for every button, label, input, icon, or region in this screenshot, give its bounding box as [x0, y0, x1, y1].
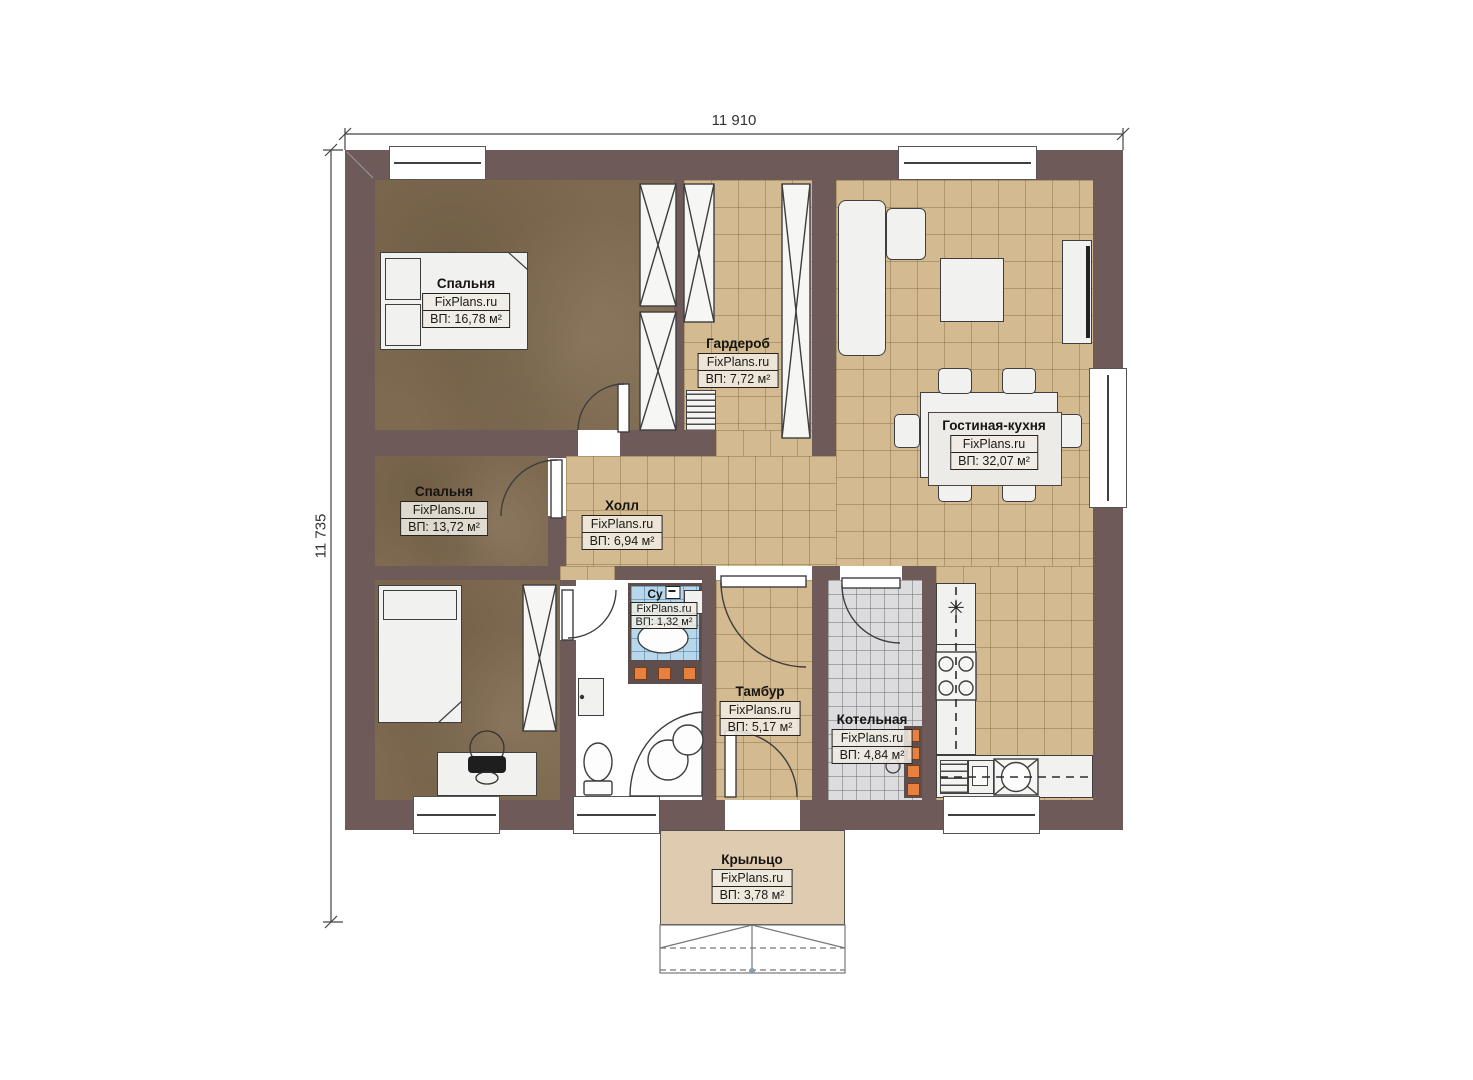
indicator-square — [907, 783, 920, 796]
watermark: FixPlans.ru — [583, 516, 662, 532]
door-symbol-icon — [666, 586, 681, 599]
window-living-right — [1089, 368, 1127, 508]
indicator-square — [907, 765, 920, 778]
wall-segment — [375, 430, 676, 456]
room-area: ВП: 3,78 м² — [713, 886, 792, 903]
room-label-boiler: Котельная FixPlans.ru ВП: 4,84 м² — [832, 712, 913, 764]
room-name: Тамбур — [720, 684, 801, 699]
window-living — [898, 146, 1037, 180]
room-label-bathroom: Су FixPlans.ru ВП: 1,32 м² — [630, 586, 697, 630]
wall-cabinet — [578, 678, 604, 716]
watermark: FixPlans.ru — [713, 870, 792, 886]
chair — [938, 368, 972, 394]
room-name: Су — [647, 587, 662, 601]
pillow — [385, 304, 421, 346]
window-bedroom3 — [413, 796, 500, 834]
room-area: ВП: 7,72 м² — [699, 370, 778, 387]
wall-segment — [812, 566, 828, 800]
wall-segment — [684, 430, 716, 456]
desk — [437, 752, 537, 796]
room-area: ВП: 4,84 м² — [833, 746, 912, 763]
room-name: Котельная — [832, 712, 913, 727]
watermark: FixPlans.ru — [423, 294, 509, 310]
window-bathroom — [573, 796, 660, 834]
room-name: Спальня — [400, 484, 488, 499]
room-name: Гостиная-кухня — [942, 418, 1045, 433]
room-name: Гардероб — [698, 336, 779, 351]
room-label-living-kitchen: Гостиная-кухня FixPlans.ru ВП: 32,07 м² — [942, 418, 1045, 470]
wall-segment — [674, 180, 684, 456]
pillow — [383, 590, 457, 620]
room-name: Крыльцо — [712, 852, 793, 867]
room-label-bedroom1: Спальня FixPlans.ru ВП: 16,78 м² — [422, 276, 510, 328]
wall-segment — [922, 580, 936, 800]
room-area: ВП: 1,32 м² — [631, 615, 696, 628]
window-bedroom1 — [389, 146, 486, 180]
wall-outer-left — [345, 150, 375, 830]
vanity-band — [628, 662, 702, 684]
watermark: FixPlans.ru — [833, 730, 912, 746]
room-name: Холл — [582, 498, 663, 513]
door-opening-bedroom2 — [548, 458, 566, 516]
door-opening-boiler — [840, 566, 902, 580]
room-label-porch: Крыльцо FixPlans.ru ВП: 3,78 м² — [712, 852, 793, 904]
watermark: FixPlans.ru — [401, 502, 487, 518]
chair — [894, 414, 920, 448]
window-kitchen — [943, 796, 1040, 834]
room-label-tambour: Тамбур FixPlans.ru ВП: 5,17 м² — [720, 684, 801, 736]
room-area: ВП: 16,78 м² — [423, 310, 509, 327]
wall-segment — [812, 180, 836, 456]
indicator-square — [634, 667, 647, 680]
floor-plan-canvas: ✳ — [0, 0, 1473, 1080]
watermark: FixPlans.ru — [631, 603, 696, 615]
room-label-bedroom2: Спальня FixPlans.ru ВП: 13,72 м² — [400, 484, 488, 536]
floor-wardrobe-passage — [716, 430, 812, 456]
door-opening-bathroom — [560, 586, 576, 640]
indicator-square — [658, 667, 671, 680]
watermark: FixPlans.ru — [699, 354, 778, 370]
door-opening-bedroom1 — [578, 430, 620, 456]
room-area: ВП: 6,94 м² — [583, 532, 662, 549]
door-opening-entrance — [725, 800, 800, 830]
tv-screen — [1086, 246, 1090, 338]
watermark: FixPlans.ru — [721, 702, 800, 718]
room-label-wardrobe: Гардероб FixPlans.ru ВП: 7,72 м² — [698, 336, 779, 388]
dimension-width: 11 910 — [712, 112, 757, 129]
pillow — [385, 258, 421, 300]
wall-segment — [375, 566, 560, 580]
dishwasher — [940, 760, 968, 794]
room-name: Спальня — [422, 276, 510, 291]
chair — [1002, 368, 1036, 394]
watermark: FixPlans.ru — [951, 436, 1037, 452]
wall-segment — [702, 580, 716, 800]
room-area: ВП: 13,72 м² — [401, 518, 487, 535]
floor-hall-passage — [560, 566, 616, 580]
room-area: ВП: 32,07 м² — [951, 452, 1037, 469]
snowflake-icon: ✳ — [936, 598, 976, 619]
sofa-chaise — [886, 208, 926, 260]
wall-segment — [615, 566, 716, 580]
door-opening-tambour — [716, 566, 812, 580]
room-area: ВП: 5,17 м² — [721, 718, 800, 735]
oven-door — [972, 766, 988, 786]
porch-steps — [660, 925, 845, 974]
room-label-hall: Холл FixPlans.ru ВП: 6,94 м² — [582, 498, 663, 550]
coffee-table — [940, 258, 1004, 322]
dimension-height: 11 735 — [313, 514, 330, 559]
sofa-body — [838, 200, 886, 356]
indicator-square — [683, 667, 696, 680]
